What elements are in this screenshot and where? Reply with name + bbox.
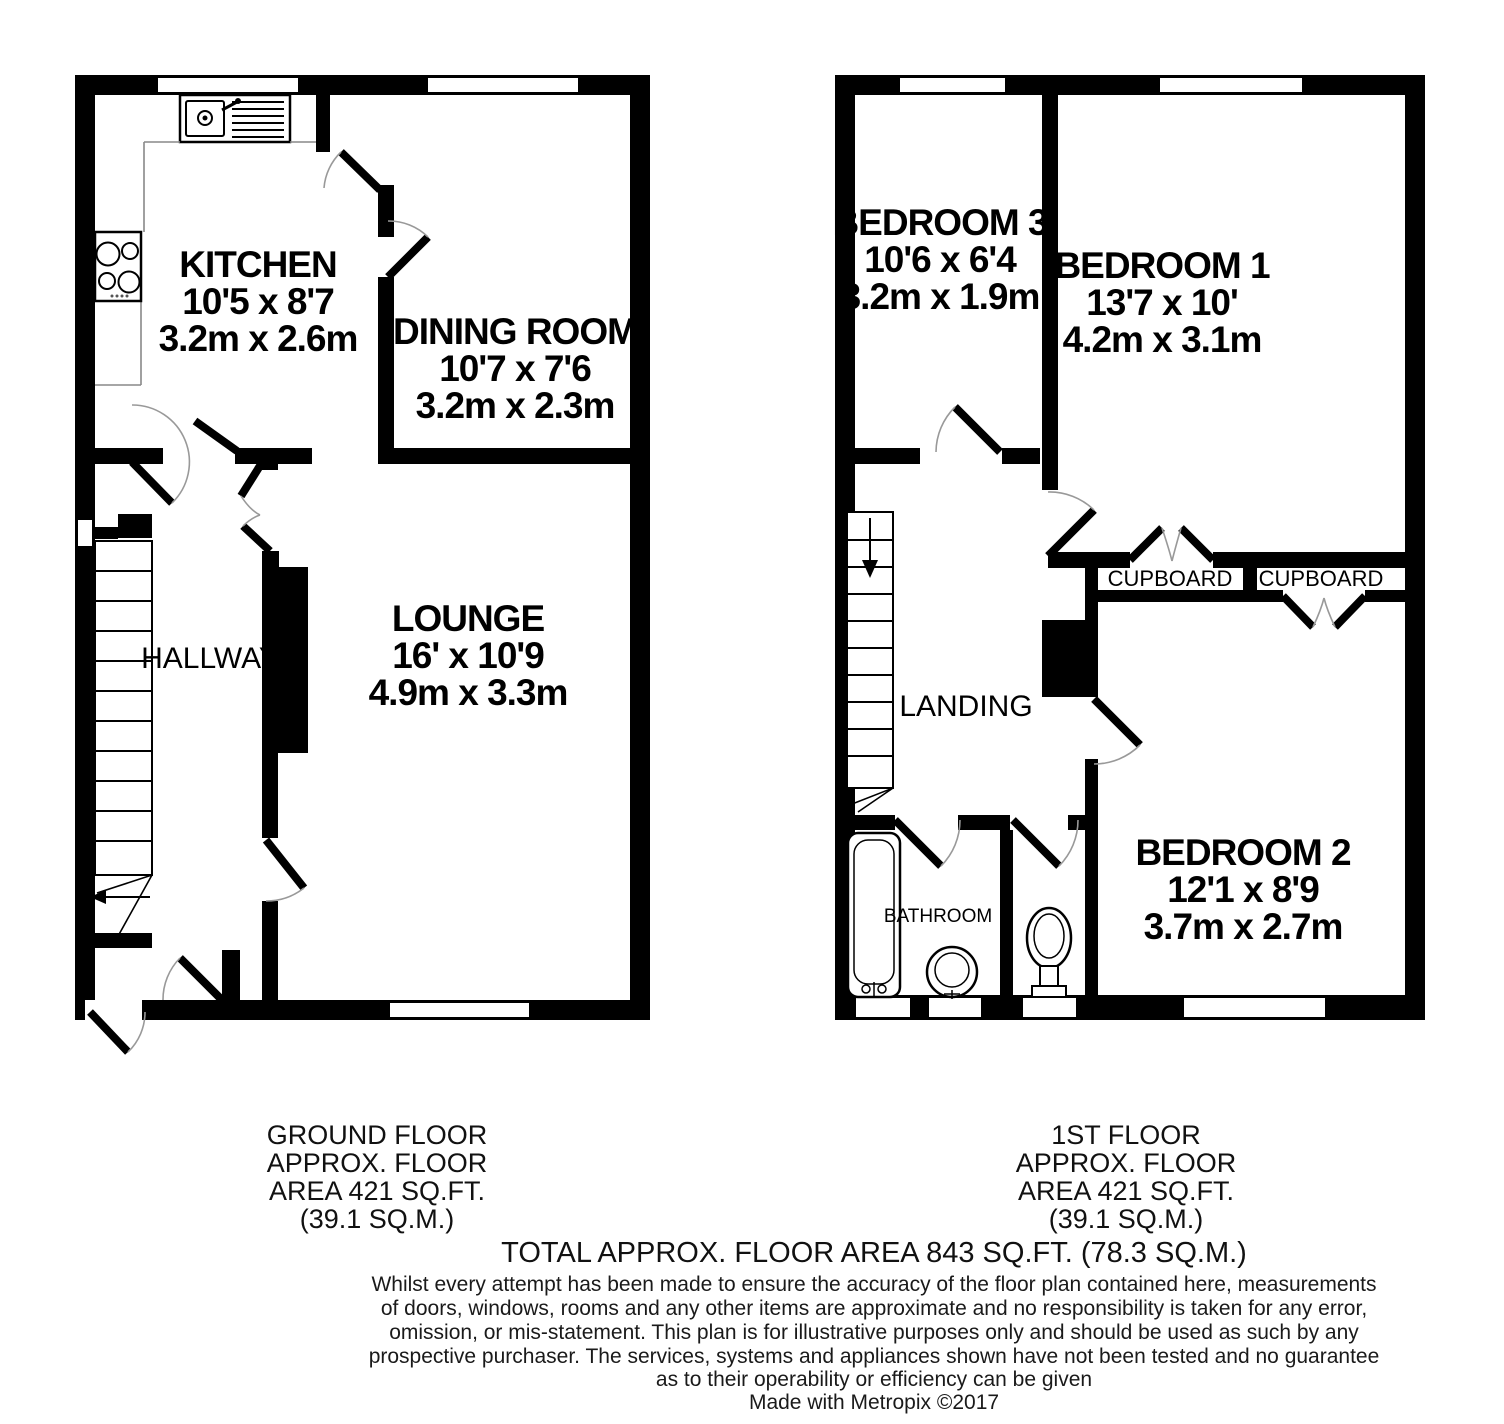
first-floor-summary-line1: 1ST FLOOR <box>1051 1120 1201 1150</box>
bedroom3-size-imperial: 10'6 x 6'4 <box>864 239 1017 280</box>
ground-floor-walls <box>75 75 650 1020</box>
kitchen-label: KITCHEN <box>179 244 336 285</box>
door-cupboard2 <box>1283 596 1365 627</box>
lounge-size-imperial: 16' x 10'9 <box>392 635 544 676</box>
bathroom-label: BATHROOM <box>884 906 992 927</box>
door-cupboard1 <box>1130 528 1213 561</box>
ground-floor-summary-line2: APPROX. FLOOR <box>267 1148 488 1178</box>
disclaimer-line2: of doors, windows, rooms and any other i… <box>381 1297 1367 1320</box>
metropix-credit: Made with Metropix ©2017 <box>749 1391 999 1414</box>
first-floor-plan: BEDROOM 3 10'6 x 6'4 3.2m x 1.9m BEDROOM… <box>832 75 1425 1020</box>
dining-room-label: DINING ROOM <box>393 311 637 352</box>
bedroom1-label: BEDROOM 1 <box>1054 245 1270 286</box>
bedroom2-size-imperial: 12'1 x 8'9 <box>1167 869 1319 910</box>
door-bathroom <box>895 820 960 866</box>
staircase-first <box>847 512 893 812</box>
door-kitchen-dining <box>324 152 428 277</box>
disclaimer-line4: prospective purchaser. The services, sys… <box>369 1345 1380 1368</box>
washbasin-icon <box>927 947 977 999</box>
door-bedroom3 <box>936 407 1000 452</box>
bedroom1-size-metric: 4.2m x 3.1m <box>1063 319 1262 360</box>
floorplan-canvas: KITCHEN 10'5 x 8'7 3.2m x 2.6m DINING RO… <box>0 0 1504 1424</box>
ground-floor-summary-line4: (39.1 SQ.M.) <box>300 1204 455 1234</box>
disclaimer-line5: as to their operability or efficiency ca… <box>656 1368 1092 1391</box>
bedroom3-label: BEDROOM 3 <box>832 202 1048 243</box>
cupboard2-label: CUPBOARD <box>1259 566 1384 591</box>
hallway-label: HALLWAY <box>141 642 279 675</box>
door-hallway-lounge <box>241 461 270 551</box>
lounge-label: LOUNGE <box>392 598 545 639</box>
dining-room-size-imperial: 10'7 x 7'6 <box>439 348 591 389</box>
ground-floor-summary-line3: AREA 421 SQ.FT. <box>269 1176 485 1206</box>
first-floor-summary-line2: APPROX. FLOOR <box>1016 1148 1237 1178</box>
cupboard1-label: CUPBOARD <box>1108 566 1233 591</box>
door-bedroom1 <box>1048 492 1094 556</box>
door-lounge-lower <box>266 840 304 901</box>
kitchen-size-imperial: 10'5 x 8'7 <box>182 281 334 322</box>
landing-label: LANDING <box>899 690 1032 723</box>
hob-icon <box>95 232 141 301</box>
ground-floor-plan: KITCHEN 10'5 x 8'7 3.2m x 2.6m DINING RO… <box>75 75 650 1052</box>
footer: GROUND FLOOR APPROX. FLOOR AREA 421 SQ.F… <box>267 1120 1380 1414</box>
bedroom2-label: BEDROOM 2 <box>1135 832 1351 873</box>
disclaimer-line3: omission, or mis-statement. This plan is… <box>389 1321 1359 1344</box>
door-vestibule <box>163 958 222 1000</box>
first-floor-summary-line3: AREA 421 SQ.FT. <box>1018 1176 1234 1206</box>
disclaimer-line1: Whilst every attempt has been made to en… <box>371 1273 1376 1296</box>
staircase-ground <box>90 541 152 938</box>
bedroom1-size-imperial: 13'7 x 10' <box>1086 282 1238 323</box>
bedroom2-size-metric: 3.7m x 2.7m <box>1144 906 1343 947</box>
door-bedroom2 <box>1094 699 1140 764</box>
dining-room-size-metric: 3.2m x 2.3m <box>416 385 615 426</box>
ground-floor-summary-line1: GROUND FLOOR <box>267 1120 488 1150</box>
bedroom3-size-metric: 3.2m x 1.9m <box>841 276 1040 317</box>
first-floor-summary-line4: (39.1 SQ.M.) <box>1049 1204 1204 1234</box>
lounge-size-metric: 4.9m x 3.3m <box>369 672 568 713</box>
toilet-icon <box>1027 908 1071 997</box>
total-floor-area: TOTAL APPROX. FLOOR AREA 843 SQ.FT. (78.… <box>501 1237 1247 1269</box>
kitchen-sink-icon <box>180 95 290 142</box>
kitchen-size-metric: 3.2m x 2.6m <box>159 318 358 359</box>
